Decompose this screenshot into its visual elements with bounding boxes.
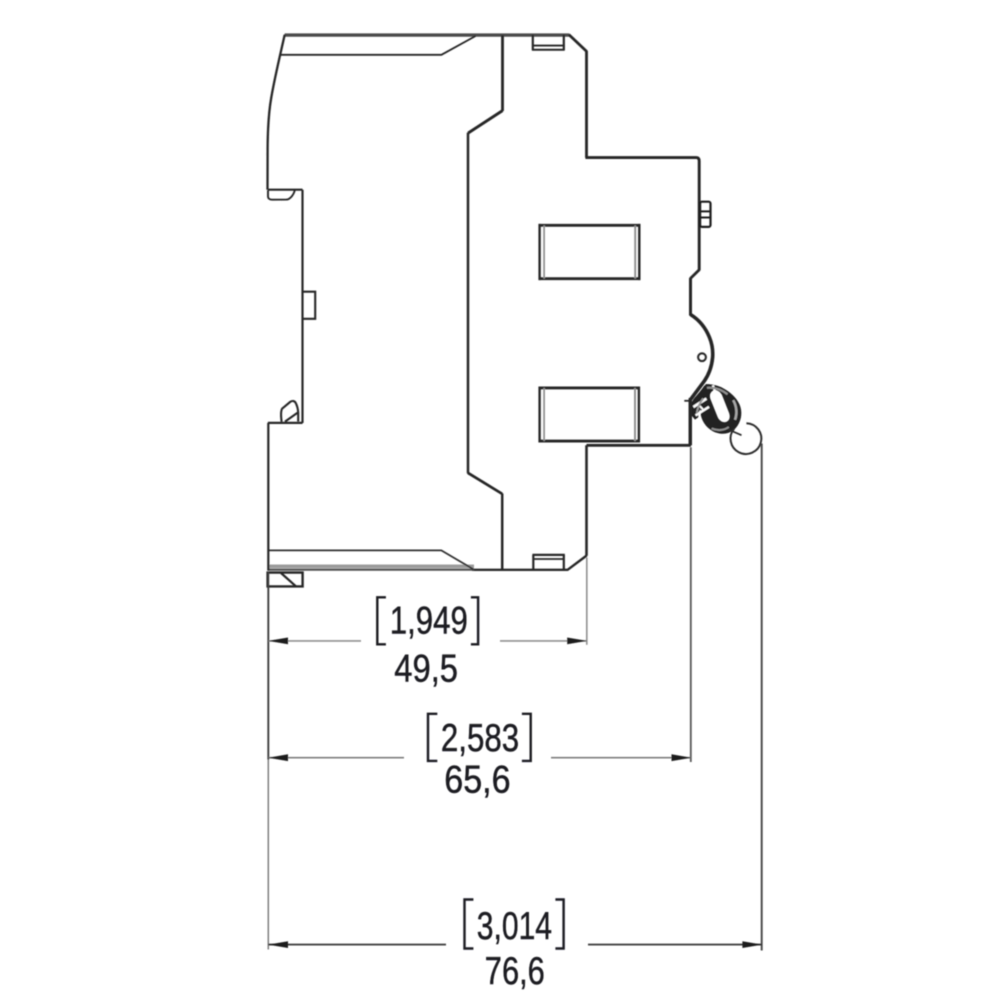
svg-text:1,949: 1,949 (390, 600, 468, 643)
svg-text:49,5: 49,5 (394, 648, 458, 691)
svg-text:76,6: 76,6 (485, 950, 545, 993)
svg-text:65,6: 65,6 (444, 759, 510, 802)
svg-text:2,583: 2,583 (441, 717, 519, 760)
svg-text:3,014: 3,014 (477, 905, 552, 948)
